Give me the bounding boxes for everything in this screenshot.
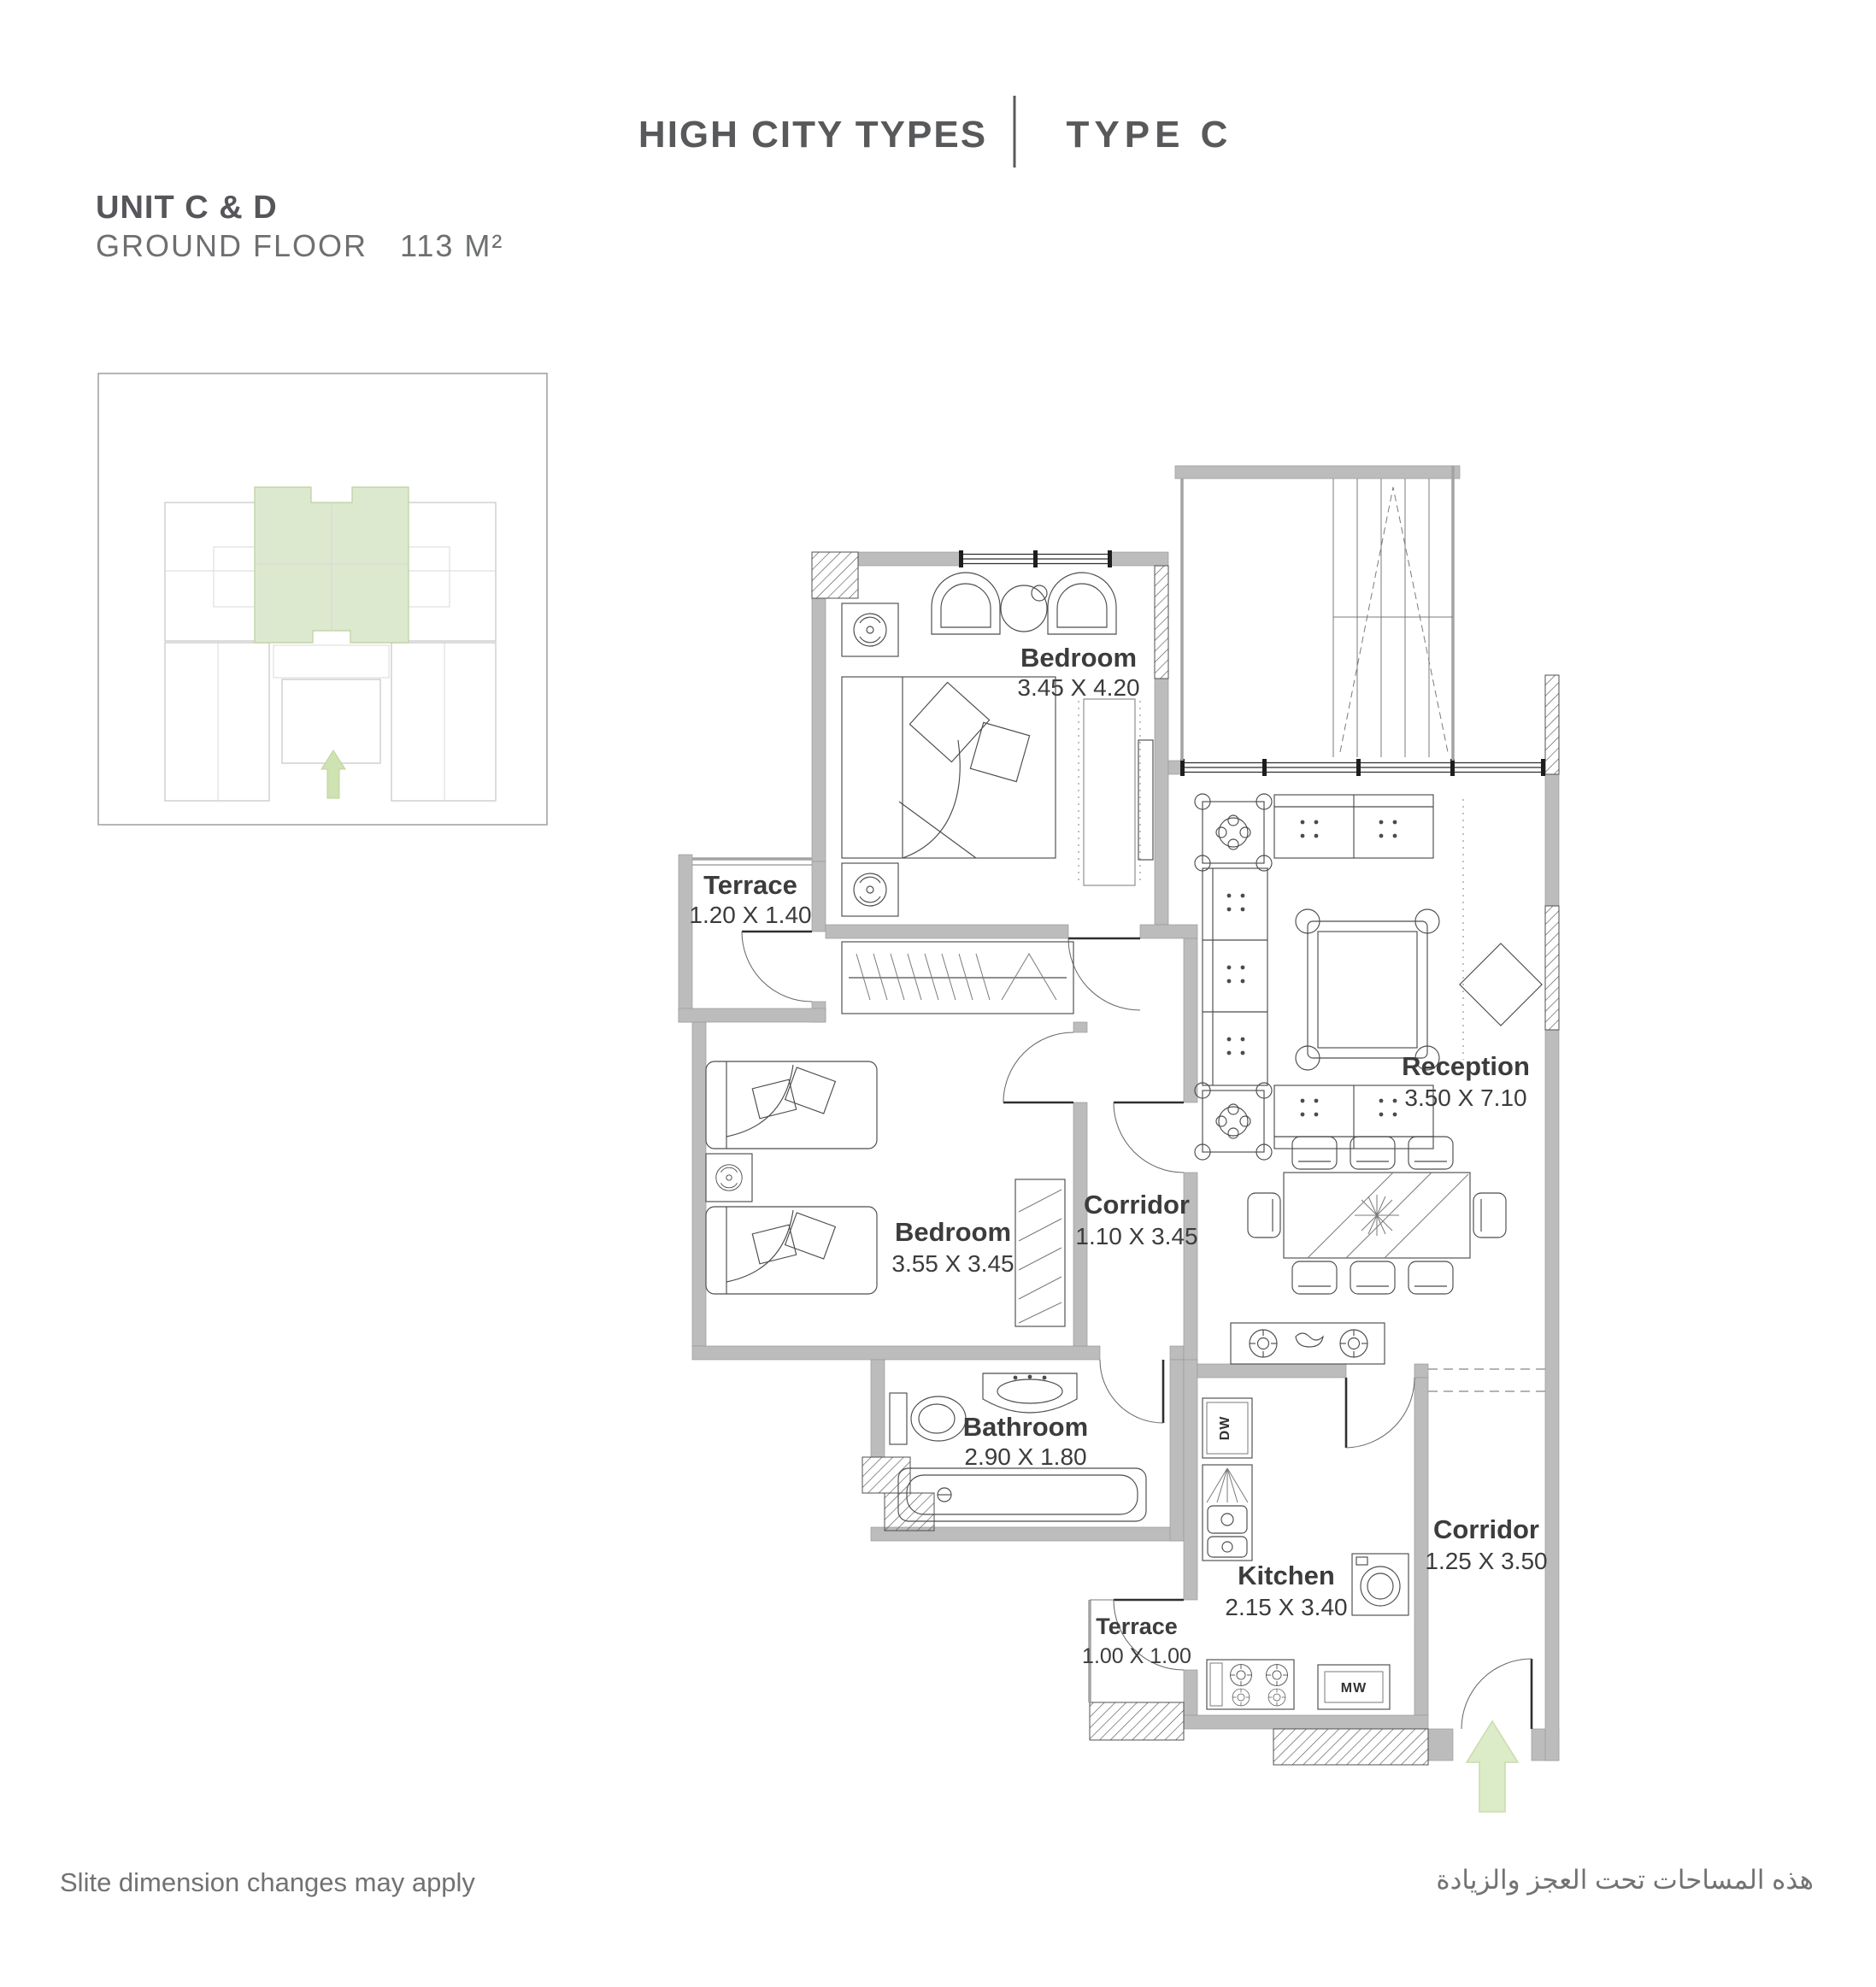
room-name: Corridor <box>1084 1190 1190 1220</box>
room-label-reception: Reception 3.50 X 7.10 <box>1402 1051 1530 1111</box>
footer-note-ar: هذه المساحات تحت العجز والزيادة <box>1436 1865 1814 1896</box>
nightstand <box>842 863 898 916</box>
room-label-bedroom-2: Bedroom 3.55 X 3.45 <box>891 1217 1014 1277</box>
plant-table <box>1195 794 1272 871</box>
room-label-bedroom-master: Bedroom 3.45 X 4.20 <box>1017 643 1139 701</box>
room-dims: 3.55 X 3.45 <box>891 1250 1014 1277</box>
balcony <box>1182 466 1453 761</box>
dining-chair <box>1248 1193 1280 1237</box>
room-dims: 2.90 X 1.80 <box>964 1443 1086 1470</box>
nightstand <box>842 603 898 656</box>
dining-chair <box>1473 1193 1506 1237</box>
bedroom-master-furniture <box>842 573 1153 916</box>
wardrobe <box>842 942 1073 1014</box>
room-dims: 3.45 X 4.20 <box>1017 674 1139 701</box>
washing-machine <box>1352 1554 1408 1615</box>
kitchen-door <box>1346 1378 1414 1448</box>
room-label-terrace-1: Terrace 1.20 X 1.40 <box>689 870 811 928</box>
dishwasher-label: DW <box>1218 1416 1232 1441</box>
stove <box>1207 1660 1294 1709</box>
room-label-terrace-2: Terrace 1.00 X 1.00 <box>1082 1614 1191 1668</box>
room-dims: 1.00 X 1.00 <box>1082 1644 1191 1668</box>
stairs <box>1333 479 1453 757</box>
dresser <box>1138 740 1153 860</box>
page-header: HIGH CITY TYPES TYPE C <box>638 96 1233 168</box>
bedroom-2-door <box>1003 1032 1073 1102</box>
coffee-table <box>1296 909 1439 1070</box>
page-title: HIGH CITY TYPES <box>638 114 987 156</box>
dining-chair <box>1292 1261 1337 1294</box>
dining-chair <box>1292 1137 1337 1169</box>
sofa <box>1274 795 1433 858</box>
side-table <box>1460 944 1542 1026</box>
entry-door <box>1461 1659 1532 1729</box>
kitchen-fixtures: DW <box>1203 1398 1408 1709</box>
dining-chair <box>1408 1261 1453 1294</box>
unit-title: UNIT C & D <box>96 190 278 226</box>
room-label-corridor-2: Corridor 1.25 X 3.50 <box>1425 1514 1547 1574</box>
kitchen-sink <box>1203 1465 1252 1561</box>
microwave-label: MW <box>1341 1681 1367 1696</box>
hangers-icon <box>856 954 1056 1000</box>
room-dims: 1.20 X 1.40 <box>689 902 811 928</box>
room-name: Bedroom <box>1020 643 1137 673</box>
dining-chair <box>1408 1137 1453 1169</box>
room-label-bathroom: Bathroom 2.90 X 1.80 <box>963 1412 1088 1470</box>
footer-note-en: Slite dimension changes may apply <box>60 1867 475 1897</box>
sofa <box>1203 868 1267 1085</box>
unit-floor: GROUND FLOOR113 M² <box>96 228 503 263</box>
shelf-unit <box>1015 1179 1065 1326</box>
bathtub <box>898 1468 1146 1521</box>
bathroom-door <box>1100 1360 1163 1423</box>
bedroom-2-furniture <box>706 1061 1065 1326</box>
bed <box>706 1207 877 1294</box>
room-name: Terrace <box>1096 1614 1178 1639</box>
armchair-icon <box>932 573 1116 634</box>
bed <box>706 1061 877 1149</box>
key-plan <box>98 373 547 825</box>
unit-floor-label: GROUND FLOOR <box>96 228 368 263</box>
room-dims: 3.50 X 7.10 <box>1404 1085 1526 1111</box>
room-label-kitchen: Kitchen 2.15 X 3.40 <box>1225 1561 1347 1620</box>
room-label-corridor-1: Corridor 1.10 X 3.45 <box>1075 1190 1197 1249</box>
floor-plan-document: HIGH CITY TYPES TYPE C UNIT C & D GROUND… <box>0 0 1876 1987</box>
room-dims: 1.25 X 3.50 <box>1425 1548 1547 1574</box>
rug <box>1079 699 1140 885</box>
header-type-label: TYPE C <box>1067 114 1233 156</box>
dishwasher: DW <box>1203 1398 1252 1458</box>
dining-table <box>1248 1137 1506 1294</box>
room-dims: 1.10 X 3.45 <box>1075 1223 1197 1249</box>
dining-chair <box>1350 1137 1395 1169</box>
bathroom-sink <box>983 1373 1077 1413</box>
floor-plan: DW <box>679 466 1559 1812</box>
terrace-1-door <box>742 932 812 1002</box>
reception-window-band <box>1180 759 1545 776</box>
page-footer: Slite dimension changes may apply هذه ال… <box>60 1865 1814 1897</box>
microwave: MW <box>1318 1665 1390 1709</box>
reception-corridor-door <box>1114 1102 1184 1173</box>
room-name: Bathroom <box>963 1412 1088 1442</box>
room-name: Kitchen <box>1238 1561 1335 1590</box>
nightstand <box>706 1154 752 1202</box>
room-name: Bedroom <box>895 1217 1011 1247</box>
centerpiece-icon <box>1355 1195 1399 1236</box>
entry-arrow-icon <box>1467 1721 1518 1812</box>
bedroom-window <box>959 550 1112 567</box>
bed <box>842 677 1056 858</box>
room-name: Reception <box>1402 1051 1530 1081</box>
cooktop-counter <box>1231 1323 1385 1364</box>
room-dims: 2.15 X 3.40 <box>1225 1594 1347 1620</box>
unit-info: UNIT C & D GROUND FLOOR113 M² <box>96 190 503 263</box>
room-name: Corridor <box>1433 1514 1539 1544</box>
toilet <box>890 1393 966 1444</box>
room-name: Terrace <box>703 870 797 900</box>
plant-table <box>1195 1083 1272 1160</box>
unit-area: 113 M² <box>400 228 503 263</box>
dining-chair <box>1350 1261 1395 1294</box>
bedroom-master-door <box>1068 938 1140 1010</box>
